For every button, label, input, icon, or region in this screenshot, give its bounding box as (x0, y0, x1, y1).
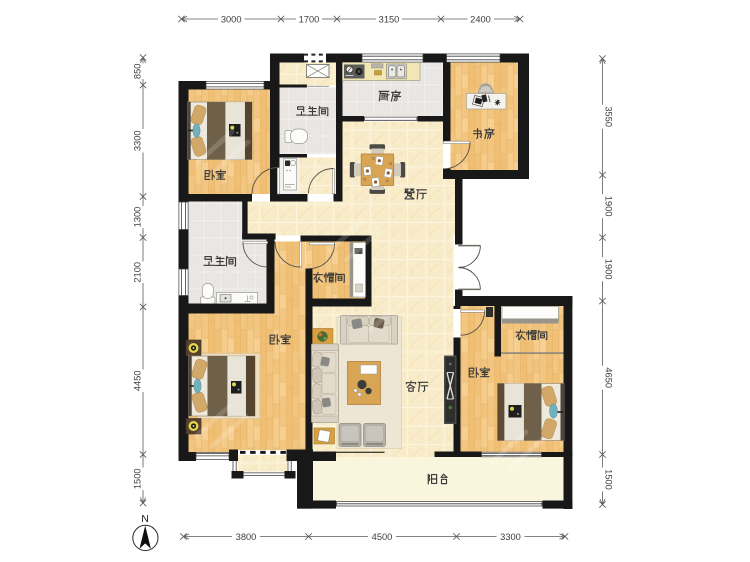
svg-text:1500: 1500 (604, 469, 614, 490)
svg-text:3550: 3550 (604, 106, 614, 127)
svg-text:2100: 2100 (133, 262, 143, 283)
svg-text:3300: 3300 (133, 130, 143, 151)
svg-text:N: N (141, 513, 149, 525)
svg-text:3000: 3000 (221, 14, 242, 24)
svg-text:2400: 2400 (470, 14, 491, 24)
svg-text:4650: 4650 (604, 367, 614, 388)
svg-text:3300: 3300 (500, 532, 521, 542)
svg-text:4500: 4500 (372, 532, 393, 542)
svg-text:4450: 4450 (133, 370, 143, 391)
svg-text:1700: 1700 (299, 14, 320, 24)
svg-text:850: 850 (133, 64, 143, 80)
svg-text:1900: 1900 (604, 196, 614, 217)
svg-text:1300: 1300 (133, 207, 143, 228)
svg-text:3800: 3800 (236, 532, 257, 542)
svg-text:1900: 1900 (604, 259, 614, 280)
svg-text:3150: 3150 (379, 14, 400, 24)
svg-text:1500: 1500 (133, 468, 143, 489)
